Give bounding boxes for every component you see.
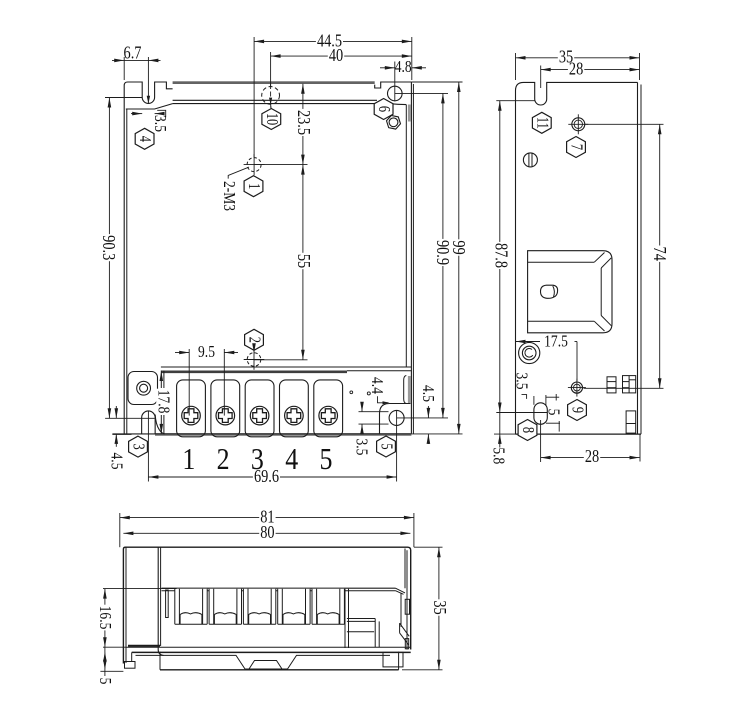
svg-text:87.8: 87.8 xyxy=(491,243,510,268)
svg-text:2-M3: 2-M3 xyxy=(220,181,237,211)
svg-text:9: 9 xyxy=(568,407,586,413)
svg-text:40: 40 xyxy=(329,47,343,66)
svg-text:4: 4 xyxy=(136,136,154,143)
svg-text:7: 7 xyxy=(567,144,585,150)
svg-text:90.9: 90.9 xyxy=(433,240,452,265)
svg-text:5.8: 5.8 xyxy=(489,447,506,464)
svg-text:28: 28 xyxy=(585,448,599,467)
svg-text:11: 11 xyxy=(533,117,551,129)
svg-text:3.5: 3.5 xyxy=(352,438,369,455)
svg-text:6: 6 xyxy=(375,106,393,112)
svg-text:23.5: 23.5 xyxy=(294,110,313,135)
svg-text:1: 1 xyxy=(244,183,262,189)
svg-text:28: 28 xyxy=(569,60,583,79)
svg-text:17.5: 17.5 xyxy=(544,333,568,350)
svg-text:8: 8 xyxy=(518,427,536,433)
svg-text:4.4: 4.4 xyxy=(368,377,385,394)
svg-text:99: 99 xyxy=(449,240,468,254)
svg-text:4: 4 xyxy=(285,443,298,476)
svg-text:1: 1 xyxy=(182,443,195,476)
svg-text:6.7: 6.7 xyxy=(124,44,142,63)
svg-text:5: 5 xyxy=(95,678,112,685)
svg-text:5: 5 xyxy=(320,443,333,476)
svg-text:5: 5 xyxy=(544,409,561,416)
svg-text:80: 80 xyxy=(260,524,274,543)
svg-text:3: 3 xyxy=(251,443,264,476)
svg-text:4.8: 4.8 xyxy=(395,59,412,76)
svg-text:17.8: 17.8 xyxy=(154,390,171,414)
svg-text:10: 10 xyxy=(262,113,280,125)
svg-text:9.5: 9.5 xyxy=(198,344,215,361)
svg-text:4.5: 4.5 xyxy=(419,385,436,402)
svg-text:55: 55 xyxy=(294,254,313,268)
svg-text:2: 2 xyxy=(245,337,263,343)
svg-text:5: 5 xyxy=(377,443,395,449)
svg-text:3.5: 3.5 xyxy=(512,373,529,390)
svg-text:74: 74 xyxy=(650,247,669,261)
svg-text:3: 3 xyxy=(129,444,147,450)
svg-text:2: 2 xyxy=(217,443,230,476)
svg-text:90.3: 90.3 xyxy=(99,235,118,260)
svg-text:16.5: 16.5 xyxy=(95,606,112,630)
svg-text:35: 35 xyxy=(430,600,449,614)
svg-text:4.5: 4.5 xyxy=(107,453,124,470)
svg-text:3.5: 3.5 xyxy=(151,115,168,132)
